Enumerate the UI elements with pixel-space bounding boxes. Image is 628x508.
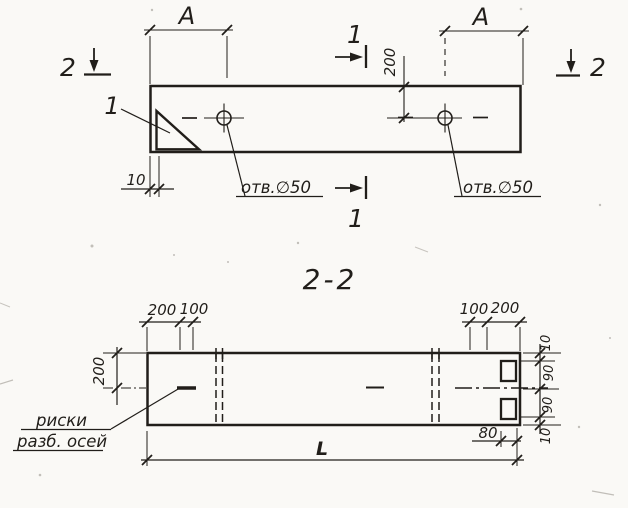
dims-right-side: 10 90 90 10 <box>519 335 561 445</box>
dim-span-left: А <box>144 2 233 84</box>
leader-line <box>448 125 462 196</box>
scan-speck <box>39 474 42 477</box>
section-arrowhead <box>350 184 363 193</box>
dims-top-left: 200 100 <box>139 300 208 351</box>
scan-speck <box>91 245 94 248</box>
scan-speck <box>173 254 175 256</box>
scan-speck <box>520 8 523 11</box>
dim-label: 90 <box>541 397 556 414</box>
scan-noise <box>0 8 614 495</box>
hole-note-left: отв.∅50 <box>227 125 323 197</box>
section-view: 2-2 <box>13 263 561 466</box>
dim-length: L <box>141 428 524 466</box>
note-text-line2: разб. осей <box>16 432 107 451</box>
hole-note-text: отв.∅50 <box>463 178 533 197</box>
joint-lines-left <box>216 348 223 424</box>
section-arrowhead <box>350 53 363 62</box>
scan-speck <box>599 204 601 206</box>
scan-speck <box>578 426 580 428</box>
drawing-sheet: 1 А <box>0 0 628 508</box>
dim-side-left: 200 <box>90 347 146 405</box>
detail-leader-line <box>121 109 170 133</box>
dim-label: А <box>471 3 489 31</box>
beam-section-outline <box>148 353 521 425</box>
scan-mark <box>0 303 10 307</box>
section-mark-1-bottom: 1 <box>335 176 366 233</box>
scan-mark <box>415 247 428 252</box>
scan-speck <box>297 242 299 244</box>
hole-left <box>182 104 244 133</box>
dim-label: А <box>177 2 195 30</box>
end-notch-top <box>501 361 516 381</box>
note-text-line1: риски <box>35 411 87 430</box>
beam-outline <box>151 86 521 152</box>
dim-label: 10 <box>126 171 145 189</box>
section-arrowhead <box>90 60 99 72</box>
section-mark-1-top: 1 <box>335 20 366 68</box>
section-title: 2-2 <box>303 263 358 296</box>
hole-note-right: отв.∅50 <box>448 125 541 197</box>
section-number: 1 <box>347 20 363 49</box>
dim-label: 100 <box>460 300 489 318</box>
detail-mark-label: 1 <box>104 92 119 120</box>
section-number: 2 <box>60 53 76 82</box>
dim-notch: 80 <box>472 424 522 447</box>
dim-label: 200 <box>148 301 177 319</box>
drawing-canvas: 1 А <box>0 0 628 508</box>
plan-view: 1 А <box>60 2 606 233</box>
leader-line <box>111 389 179 430</box>
scan-speck <box>227 261 229 263</box>
dim-label: L <box>316 438 328 460</box>
section-number: 1 <box>348 204 364 233</box>
section-arrowhead <box>567 61 576 73</box>
dims-top-right: 100 200 <box>460 299 527 351</box>
dim-label: 80 <box>478 424 497 442</box>
axis-marks-note: риски разб. осей <box>13 389 179 452</box>
scan-speck <box>151 9 153 11</box>
joint-lines-right <box>432 348 439 424</box>
scan-mark <box>0 380 13 384</box>
dim-span-right: А <box>439 3 529 85</box>
dim-label: 200 <box>491 299 520 317</box>
dim-label: 200 <box>90 357 108 386</box>
dim-end-offset: 10 <box>121 156 174 197</box>
dim-label: 10 <box>539 428 554 445</box>
dim-label: 100 <box>180 300 209 318</box>
dim-label: 10 <box>539 335 554 352</box>
scan-speck <box>609 337 611 339</box>
dim-label: 90 <box>542 365 557 382</box>
end-notch-bottom <box>501 399 516 419</box>
section-number: 2 <box>590 53 606 82</box>
scan-mark <box>592 491 614 495</box>
dim-label: 200 <box>381 48 399 77</box>
section-mark-2-left: 2 <box>60 48 111 82</box>
hole-note-text: отв.∅50 <box>241 178 311 197</box>
section-mark-2-right: 2 <box>556 49 606 82</box>
